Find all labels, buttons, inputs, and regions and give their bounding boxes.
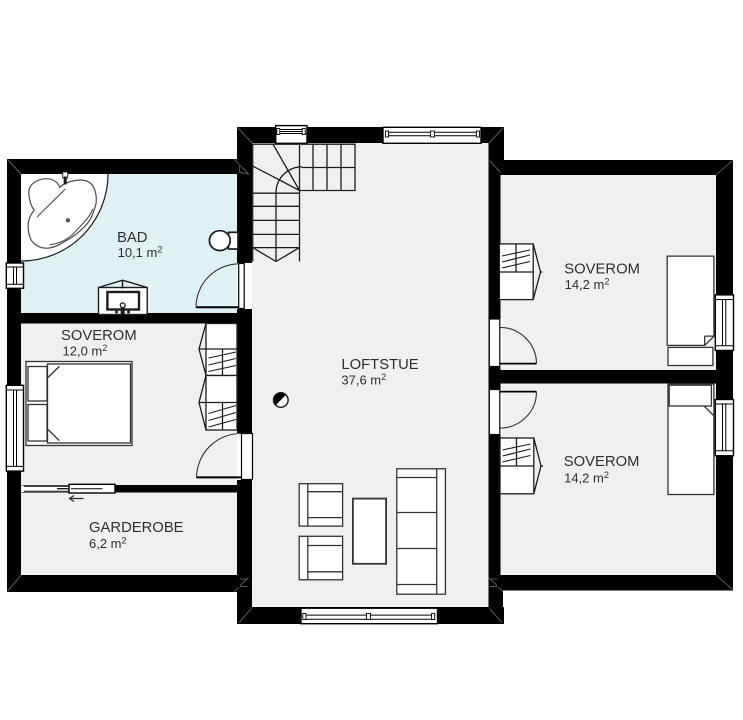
svg-text:GARDEROBE: GARDEROBE	[89, 520, 184, 536]
svg-text:12,0 m2: 12,0 m2	[63, 343, 108, 358]
svg-text:LOFTSTUE: LOFTSTUE	[341, 357, 418, 373]
svg-text:SOVEROM: SOVEROM	[61, 328, 137, 344]
svg-text:10,1 m2: 10,1 m2	[118, 245, 163, 260]
svg-text:14,2 m2: 14,2 m2	[564, 470, 609, 485]
svg-text:6,2 m2: 6,2 m2	[89, 536, 127, 551]
svg-text:SOVEROM: SOVEROM	[564, 454, 640, 470]
svg-text:SOVEROM: SOVEROM	[564, 261, 640, 277]
svg-text:37,6 m2: 37,6 m2	[341, 372, 386, 387]
svg-text:BAD: BAD	[117, 230, 147, 246]
svg-text:14,2 m2: 14,2 m2	[565, 277, 610, 292]
